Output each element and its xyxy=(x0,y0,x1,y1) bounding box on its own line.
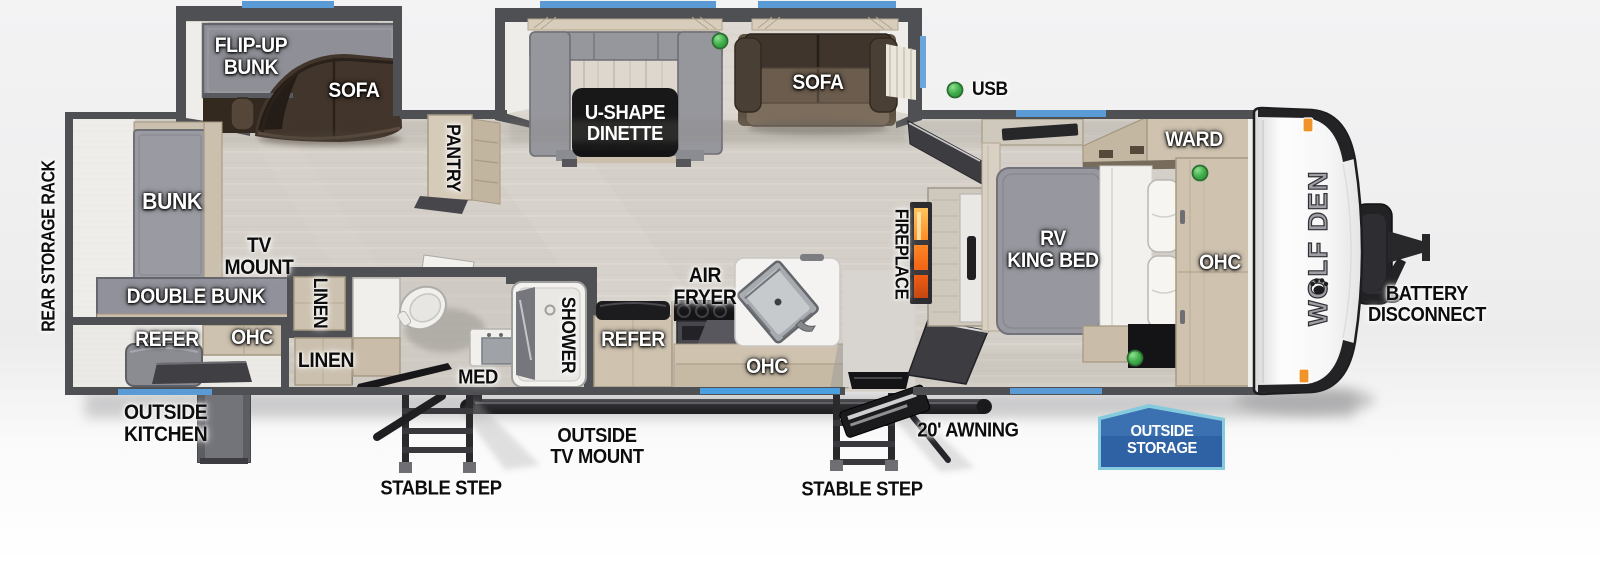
svg-text:WOLF DEN: WOLF DEN xyxy=(1303,170,1333,326)
